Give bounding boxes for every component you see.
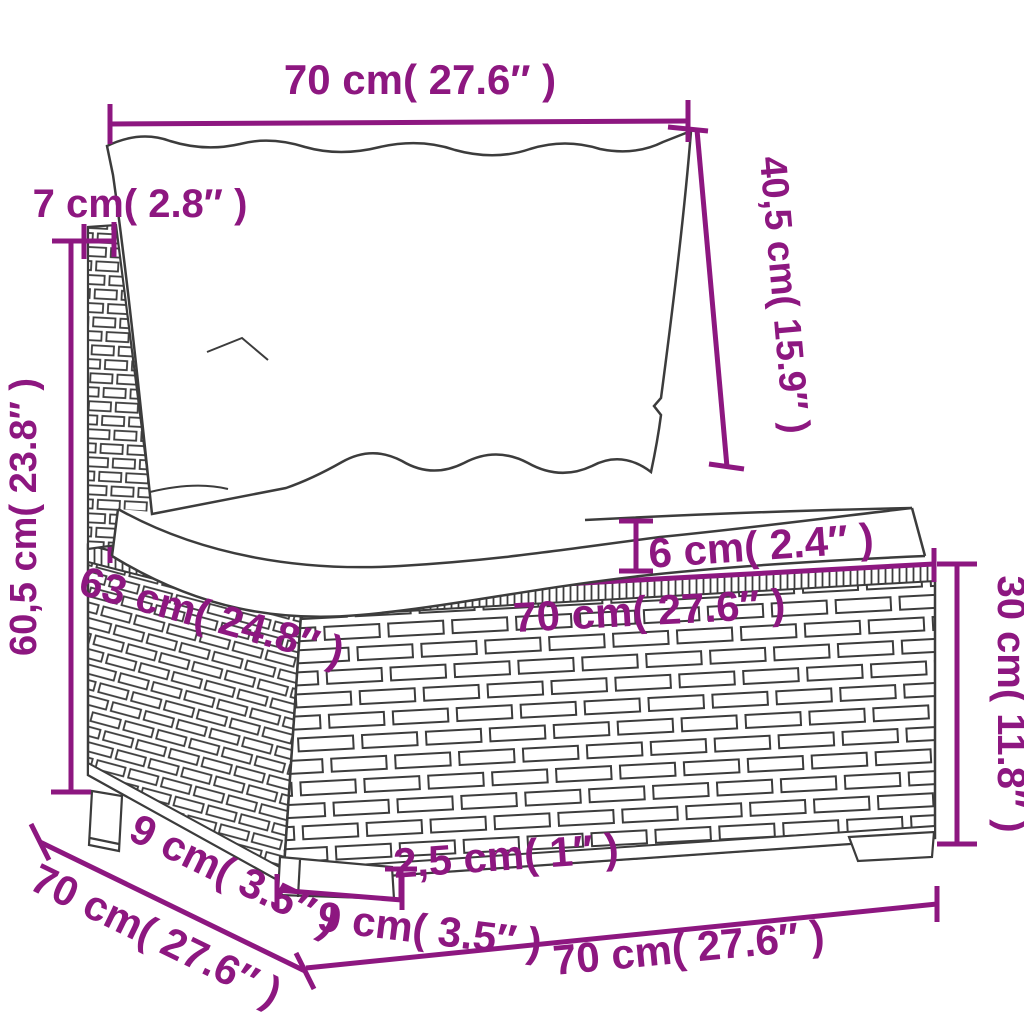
dim-base-height-label: 30 cm( 11.8″ ) <box>989 575 1024 832</box>
sofa-dimension-diagram: 70 cm( 27.6″ ) 7 cm( 2.8″ ) 60,5 cm( 23.… <box>0 0 1024 1024</box>
front-right-foot <box>849 832 934 861</box>
dim-backrest-post-depth-label: 7 cm( 2.8″ ) <box>33 182 248 226</box>
dim-overall-height: 60,5 cm( 23.8″ ) <box>3 241 91 792</box>
dim-top-width: 70 cm( 27.6″ ) <box>110 56 688 144</box>
dim-base-height: 30 cm( 11.8″ ) <box>937 564 1024 844</box>
dim-overall-height-label: 60,5 cm( 23.8″ ) <box>3 378 45 656</box>
dim-back-cushion-height-label: 40,5 cm( 15.9″ ) <box>751 155 817 436</box>
dimension-diagram-page: 70 cm( 27.6″ ) 7 cm( 2.8″ ) 60,5 cm( 23.… <box>0 0 1024 1024</box>
dim-back-cushion-height: 40,5 cm( 15.9″ ) <box>668 127 817 469</box>
dim-top-width-label: 70 cm( 27.6″ ) <box>284 56 556 103</box>
sofa-line-art <box>88 131 935 899</box>
dim-bottom-width-label: 70 cm( 27.6″ ) <box>551 911 827 984</box>
